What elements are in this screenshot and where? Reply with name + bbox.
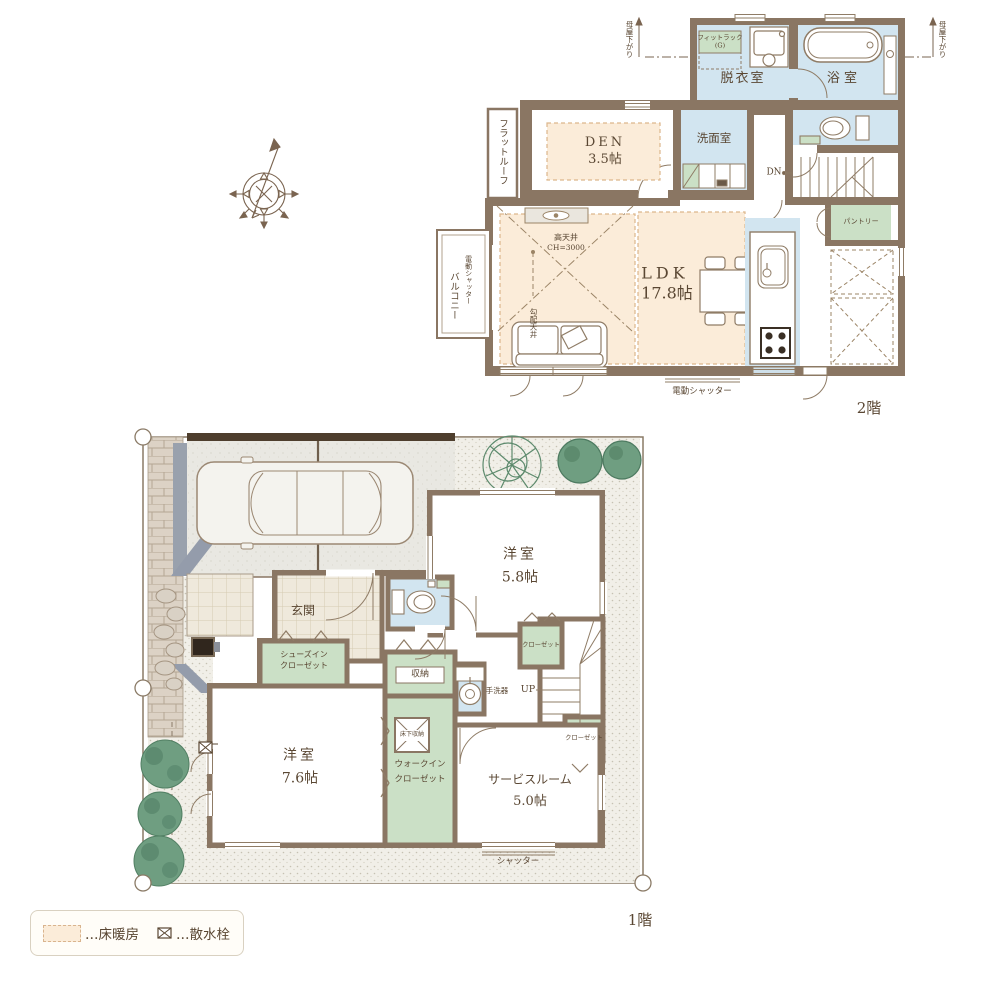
- room-size-yoshitsu76: 7.6帖: [282, 772, 318, 787]
- room-yoshitsu-58: [430, 493, 602, 635]
- fitrack-label-2: (G): [715, 43, 725, 50]
- balcony-label: バルコニー: [448, 272, 458, 320]
- flat-roof-label: フラットルーフ: [497, 119, 507, 186]
- car-icon: [197, 457, 413, 549]
- tearai-label: 手洗器: [486, 687, 509, 695]
- sofa-icon: [512, 322, 607, 368]
- room-label-ldk: LDK: [641, 266, 688, 283]
- shuno-label: 収納: [411, 670, 429, 679]
- closet-b-label: クローゼット: [565, 736, 603, 743]
- wic-label-1: ウォークイン: [394, 761, 445, 770]
- yukashita-label: 床下収納: [400, 732, 424, 738]
- stairs-dn-label: DN: [766, 168, 781, 177]
- ceiling-height-label: CH=3000: [547, 244, 585, 252]
- sloped-ceiling-label: 勾配天井: [529, 308, 537, 338]
- legend-floor-heating-label: …床暖房: [85, 923, 139, 943]
- floor2-drawing: [432, 12, 962, 424]
- sic-label-2: クローゼット: [280, 662, 328, 670]
- room-yoshitsu-76: [210, 686, 385, 845]
- room-label-yoshitsu58: 洋室: [503, 548, 537, 563]
- fitrack-label: フィットラック: [697, 35, 742, 42]
- room-label-senmenshitsu: 洗面室: [697, 132, 732, 144]
- room-size-service: 5.0帖: [513, 795, 547, 809]
- electric-shutter-bottom-label: 電動シャッター: [672, 388, 732, 397]
- floor1-plan: 玄関 シューズイン クローゼット 洋室 5.8帖 クローゼット クローゼット 収…: [128, 424, 658, 904]
- room-size-ldk: 17.8帖: [641, 286, 693, 303]
- compass-icon: [222, 128, 314, 246]
- room-size-den: 3.5帖: [588, 153, 622, 167]
- wic-label-2: クローゼット: [394, 776, 445, 785]
- floor2-plan: フィットラック (G) 脱衣室 浴 室 洗面室 DN パントリー DEN 3.5…: [432, 12, 962, 424]
- room-label-yokushitsu: 浴 室: [827, 72, 857, 86]
- floor1-drawing: [128, 424, 658, 904]
- room-size-yoshitsu58: 5.8帖: [502, 571, 538, 586]
- tree-icons-left: [134, 740, 189, 886]
- up-label: UP: [521, 685, 535, 695]
- vanity-icon: [683, 164, 745, 188]
- room-label-den: DEN: [585, 136, 625, 150]
- porch-tiles: [187, 574, 253, 636]
- room-label-pantry: パントリー: [843, 218, 878, 225]
- room-label-genkan: 玄関: [291, 605, 315, 618]
- closet-a-label: クローゼット: [522, 643, 560, 650]
- water-tap-icon: [157, 927, 172, 939]
- moya-sagari-right-label: 母屋下がり: [938, 20, 946, 58]
- electric-shutter-side-label: 電動シャッター: [464, 256, 471, 305]
- room-label-datsuishitsu: 脱衣室: [720, 72, 765, 86]
- moya-sagari-left-label: 母屋下がり: [625, 20, 633, 58]
- legend: …床暖房 …散水栓: [30, 910, 244, 956]
- sic-label-1: シューズイン: [280, 651, 328, 659]
- floor-heating-swatch: [43, 925, 81, 942]
- high-ceiling-label: 高天井: [554, 234, 578, 242]
- entrance-post: [192, 638, 214, 656]
- room-label-yoshitsu76: 洋室: [283, 749, 317, 764]
- shutter-label: シャッター: [497, 858, 540, 867]
- room-label-service: サービスルーム: [488, 774, 572, 787]
- washer-icon: [750, 27, 788, 67]
- legend-water-tap-label: …散水栓: [176, 923, 230, 943]
- fence: [187, 433, 455, 441]
- floor2-label: 2階: [857, 401, 882, 417]
- tv-board-icon: [525, 208, 588, 223]
- floorplan-page: フィットラック (G) 脱衣室 浴 室 洗面室 DN パントリー DEN 3.5…: [0, 0, 1000, 982]
- floor1-label: 1階: [628, 913, 653, 929]
- closet-dashed-2f: [831, 250, 893, 364]
- stove-icon: [761, 328, 790, 358]
